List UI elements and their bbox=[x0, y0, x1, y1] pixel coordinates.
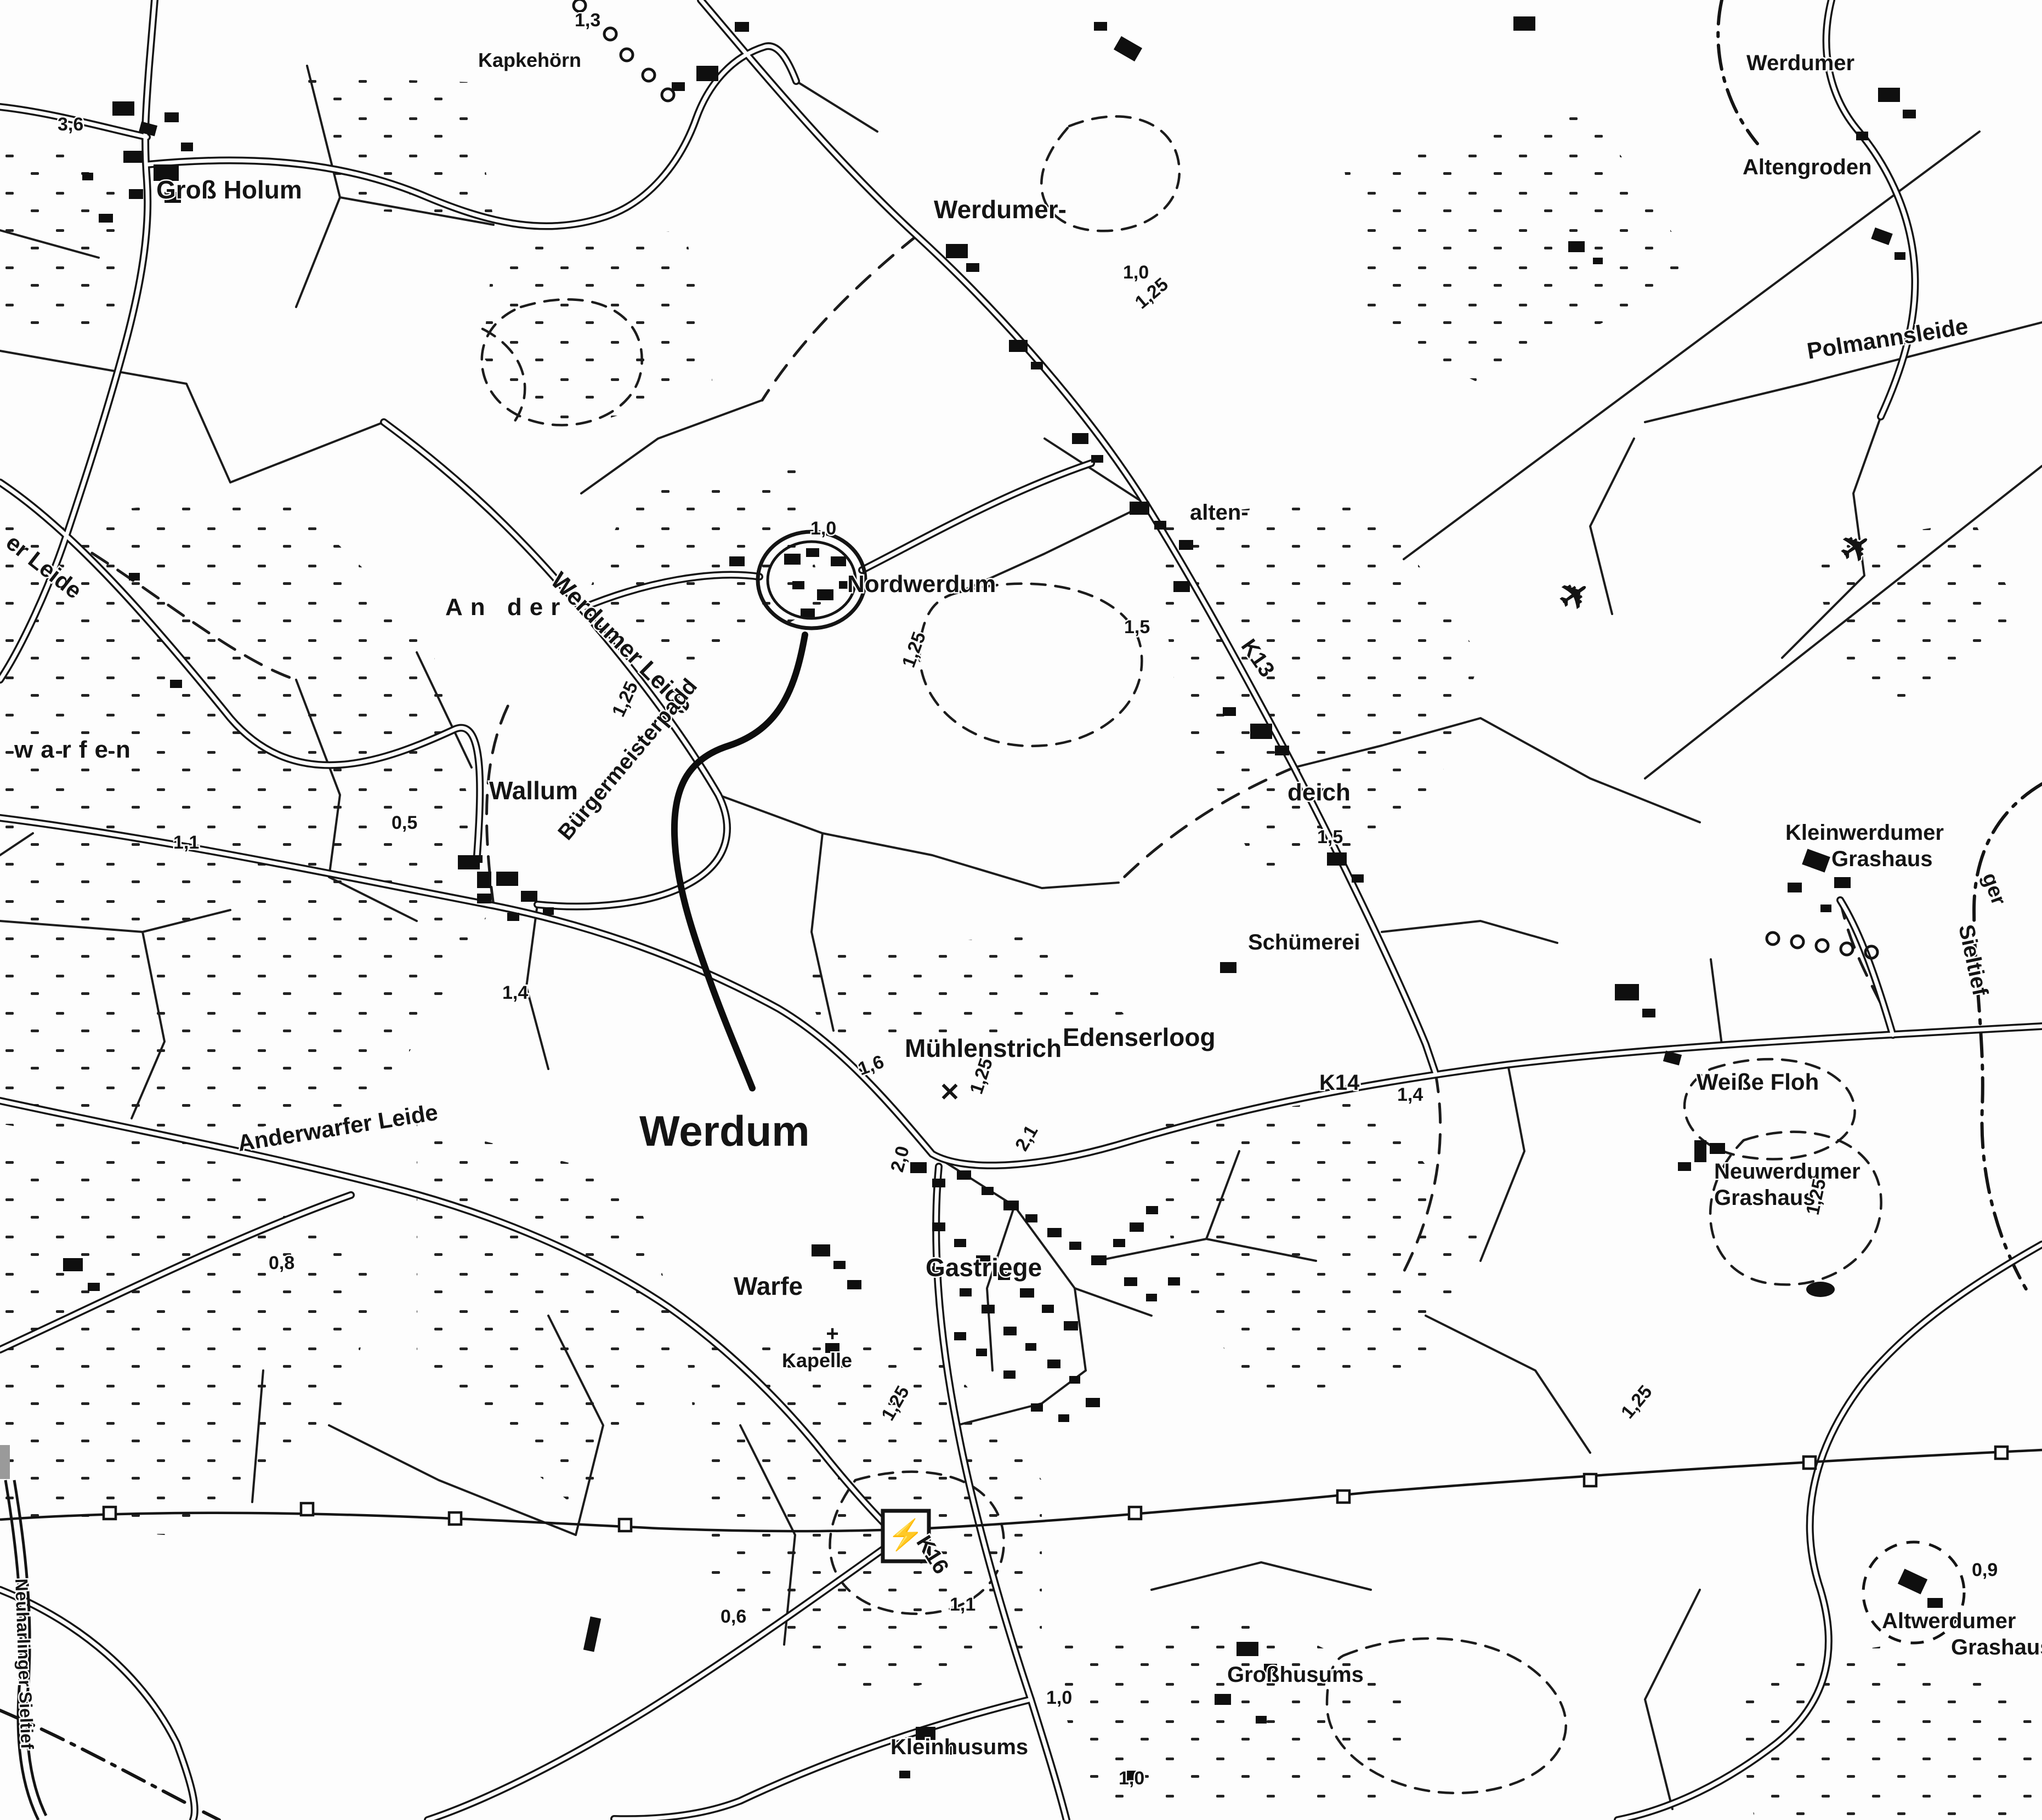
building bbox=[1788, 883, 1802, 892]
building bbox=[521, 891, 537, 902]
label-height-1-0-c: 1,0 bbox=[1046, 1687, 1072, 1708]
map-canvas: ✈✈⚡✕+ Groß Holum3,6Kapkehörn1,3Werdumer-… bbox=[0, 0, 2042, 1820]
building bbox=[1091, 1255, 1107, 1265]
building bbox=[1094, 22, 1107, 31]
building bbox=[1086, 1398, 1100, 1407]
building bbox=[847, 1280, 861, 1289]
label-warfe: Warfe bbox=[734, 1272, 803, 1300]
building bbox=[1834, 877, 1851, 888]
chapel-cross-icon: + bbox=[826, 1322, 838, 1346]
building bbox=[982, 1305, 995, 1313]
building bbox=[812, 1244, 830, 1256]
building bbox=[1820, 905, 1831, 912]
label-kleinwerdumer-1: Kleinwerdumer bbox=[1785, 821, 1944, 845]
building bbox=[1593, 258, 1603, 264]
building bbox=[1047, 1360, 1060, 1368]
building bbox=[1856, 132, 1868, 140]
building bbox=[1710, 1143, 1725, 1154]
building bbox=[1327, 852, 1347, 866]
label-edenserloog: Edenserloog bbox=[1063, 1023, 1216, 1051]
building bbox=[932, 1222, 945, 1231]
building bbox=[1003, 1327, 1017, 1335]
label-kapkehoern: Kapkehörn bbox=[478, 49, 581, 71]
building bbox=[1168, 1277, 1180, 1286]
label-height-0-9: 0,9 bbox=[1972, 1560, 1998, 1580]
label-height-1-4-b: 1,4 bbox=[502, 982, 528, 1003]
building bbox=[729, 556, 745, 566]
building bbox=[129, 573, 140, 581]
building bbox=[817, 589, 833, 600]
label-height-1-3: 1,3 bbox=[575, 10, 600, 31]
building bbox=[982, 1187, 994, 1195]
label-grosshusums: Großhusums bbox=[1227, 1663, 1364, 1687]
building bbox=[1091, 455, 1103, 463]
building bbox=[123, 151, 142, 163]
building bbox=[1003, 1370, 1016, 1379]
building bbox=[112, 101, 134, 116]
building bbox=[735, 22, 749, 32]
building bbox=[1694, 1140, 1706, 1162]
building bbox=[181, 143, 193, 151]
label-werdum: Werdum bbox=[639, 1107, 810, 1155]
building bbox=[1615, 984, 1639, 1000]
building bbox=[1069, 1242, 1081, 1250]
label-alten: alten- bbox=[1190, 501, 1249, 525]
building bbox=[910, 1162, 927, 1173]
scan-artifact-strip bbox=[0, 1445, 10, 1479]
building bbox=[1031, 362, 1043, 369]
label-gastriege: Gastriege bbox=[926, 1253, 1042, 1282]
building bbox=[696, 66, 718, 81]
label-height-1-0-b: 1,0 bbox=[810, 518, 836, 539]
label-wallum: Wallum bbox=[489, 776, 578, 805]
building bbox=[1042, 1305, 1054, 1313]
label-kleinhusums: Kleinhusums bbox=[890, 1735, 1028, 1759]
label-altwerdumer-1: Altwerdumer bbox=[1882, 1609, 2016, 1633]
building bbox=[1047, 1228, 1062, 1237]
building bbox=[165, 112, 179, 122]
label-warfen: warfen bbox=[14, 736, 138, 763]
label-werdumer-top: Werdumer- bbox=[934, 195, 1067, 224]
label-height-1-1-a: 1,1 bbox=[173, 832, 199, 853]
building bbox=[1025, 1214, 1037, 1222]
building bbox=[1154, 521, 1166, 530]
label-altwerdumer-2: Grashaus bbox=[1951, 1635, 2042, 1659]
building bbox=[1130, 1222, 1144, 1232]
building bbox=[831, 556, 846, 566]
label-height-1-5-b: 1,5 bbox=[1317, 827, 1343, 848]
building bbox=[458, 855, 480, 869]
building bbox=[1352, 874, 1364, 883]
building bbox=[1678, 1162, 1691, 1171]
building bbox=[976, 1349, 987, 1356]
building bbox=[170, 680, 182, 688]
label-kleinwerdumer-2: Grashaus bbox=[1831, 847, 1933, 871]
building bbox=[792, 581, 804, 589]
label-nordwerdum: Nordwerdum bbox=[847, 571, 996, 598]
building bbox=[1058, 1414, 1069, 1422]
building bbox=[899, 1771, 910, 1778]
label-k14: K14 bbox=[1319, 1071, 1360, 1095]
building bbox=[1069, 1376, 1080, 1384]
building bbox=[507, 913, 519, 921]
label-height-0-5: 0,5 bbox=[392, 812, 417, 833]
building bbox=[954, 1239, 966, 1247]
building bbox=[1146, 1206, 1158, 1214]
building bbox=[1179, 540, 1193, 550]
building bbox=[129, 189, 143, 199]
building bbox=[946, 244, 968, 258]
label-gross-holum: Groß Holum bbox=[156, 175, 302, 204]
label-height-1-4-a: 1,4 bbox=[1397, 1084, 1423, 1105]
label-werdumer-ne: Werdumer bbox=[1746, 51, 1854, 75]
label-deich: deich bbox=[1287, 779, 1351, 806]
label-altengroden: Altengroden bbox=[1743, 155, 1872, 179]
building bbox=[1072, 433, 1088, 444]
building bbox=[1009, 340, 1028, 352]
building bbox=[1256, 1716, 1267, 1724]
label-an-der: An der bbox=[445, 594, 568, 621]
label-weisse-floh: Weiße Floh bbox=[1697, 1069, 1819, 1095]
building bbox=[954, 1332, 966, 1340]
label-height-1-0-a: 1,0 bbox=[1123, 262, 1149, 283]
building bbox=[1903, 110, 1916, 118]
label-kapelle: Kapelle bbox=[782, 1349, 852, 1372]
building bbox=[1215, 1694, 1231, 1705]
building bbox=[477, 872, 491, 888]
building bbox=[932, 1179, 945, 1187]
building bbox=[1064, 1321, 1078, 1330]
building bbox=[1878, 88, 1900, 102]
building bbox=[1275, 746, 1289, 755]
building bbox=[1025, 1343, 1036, 1351]
building bbox=[543, 907, 554, 915]
building bbox=[88, 1283, 100, 1291]
building bbox=[957, 1170, 971, 1180]
building bbox=[1568, 241, 1585, 252]
building bbox=[1223, 707, 1236, 716]
label-height-0-8: 0,8 bbox=[269, 1253, 294, 1273]
building bbox=[1130, 502, 1149, 515]
windmill-icon: ✕ bbox=[939, 1078, 961, 1106]
building bbox=[82, 173, 93, 180]
label-schuemerei: Schümerei bbox=[1248, 930, 1360, 954]
building bbox=[966, 263, 979, 272]
building bbox=[1250, 724, 1272, 739]
label-neuwerdumer-1: Neuwerdumer bbox=[1714, 1159, 1861, 1184]
building bbox=[1927, 1598, 1943, 1608]
building bbox=[1173, 581, 1190, 592]
label-height-3-6: 3,6 bbox=[58, 114, 83, 135]
building bbox=[672, 82, 685, 91]
building bbox=[1020, 1288, 1034, 1298]
building bbox=[1513, 16, 1535, 31]
building bbox=[833, 1261, 846, 1269]
building bbox=[1236, 1642, 1258, 1656]
building bbox=[1642, 1009, 1655, 1017]
building bbox=[1003, 1201, 1019, 1210]
building bbox=[806, 548, 819, 557]
building bbox=[1031, 1403, 1043, 1412]
building bbox=[1220, 962, 1236, 973]
building bbox=[1113, 1239, 1125, 1247]
building bbox=[99, 214, 113, 223]
building bbox=[496, 872, 518, 886]
building bbox=[1124, 1277, 1137, 1286]
label-height-1-0-d: 1,0 bbox=[1119, 1768, 1144, 1789]
label-height-1-5-a: 1,5 bbox=[1124, 617, 1150, 638]
building bbox=[1894, 252, 1905, 260]
label-height-0-6: 0,6 bbox=[721, 1606, 746, 1627]
label-neuwerdumer-2: Grashaus bbox=[1714, 1186, 1816, 1210]
label-height-1-1-b: 1,1 bbox=[950, 1594, 975, 1615]
building bbox=[63, 1258, 83, 1271]
building bbox=[960, 1288, 972, 1296]
building bbox=[477, 894, 491, 903]
building bbox=[784, 554, 801, 565]
building bbox=[1146, 1294, 1157, 1301]
